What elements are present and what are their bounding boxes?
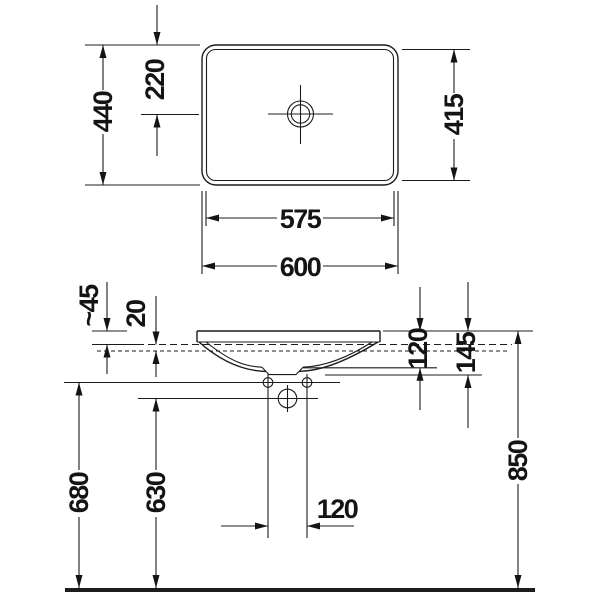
dim-rim-depth-415: 415 bbox=[439, 50, 469, 181]
dim-label-680: 680 bbox=[64, 472, 94, 513]
countertop-lines bbox=[92, 345, 512, 352]
dim-installation-height-850: 850 bbox=[503, 331, 533, 588]
drain-boss bbox=[262, 367, 303, 374]
holes bbox=[64, 374, 340, 538]
dim-total-depth-145: 145 bbox=[451, 282, 481, 428]
dim-label-20: 20 bbox=[121, 300, 151, 328]
dim-rim-width-575: 575 bbox=[206, 204, 394, 234]
dim-label-600: 600 bbox=[280, 252, 321, 282]
dim-label-145: 145 bbox=[451, 331, 481, 373]
dim-outer-width-600: 600 bbox=[202, 252, 398, 282]
technical-drawing: 440 220 415 575 600 bbox=[0, 0, 600, 600]
dim-tap-center-220: 220 bbox=[140, 5, 170, 156]
dim-label-630: 630 bbox=[141, 472, 171, 513]
dim-hole-spacing-120: 120 bbox=[221, 494, 358, 526]
bowl-inner-right bbox=[303, 342, 372, 367]
dim-counter-thickness-20: 20 bbox=[121, 296, 156, 377]
dim-height-680: 680 bbox=[64, 383, 94, 589]
tap-hole bbox=[268, 85, 333, 144]
plan-view: 440 220 415 575 600 bbox=[85, 5, 470, 282]
dim-label-120-spacing: 120 bbox=[317, 494, 358, 524]
dim-inner-depth-120: 120 bbox=[403, 287, 433, 410]
dim-label-575: 575 bbox=[280, 204, 322, 234]
dim-outer-depth-440: 440 bbox=[88, 45, 118, 185]
washbasin-dimension-diagram: 440 220 415 575 600 bbox=[0, 0, 600, 600]
dim-height-630: 630 bbox=[141, 399, 171, 589]
dim-label-220: 220 bbox=[140, 59, 170, 100]
dim-label-415: 415 bbox=[439, 93, 469, 135]
dim-label-440: 440 bbox=[88, 91, 118, 132]
dim-label-120-depth: 120 bbox=[403, 328, 433, 369]
dim-label-850: 850 bbox=[503, 440, 533, 481]
dim-label-45: ~45 bbox=[74, 284, 104, 327]
front-elevation: ~45 20 120 145 850 680 bbox=[64, 282, 535, 590]
dim-rim-above-counter-45: ~45 bbox=[74, 282, 107, 374]
